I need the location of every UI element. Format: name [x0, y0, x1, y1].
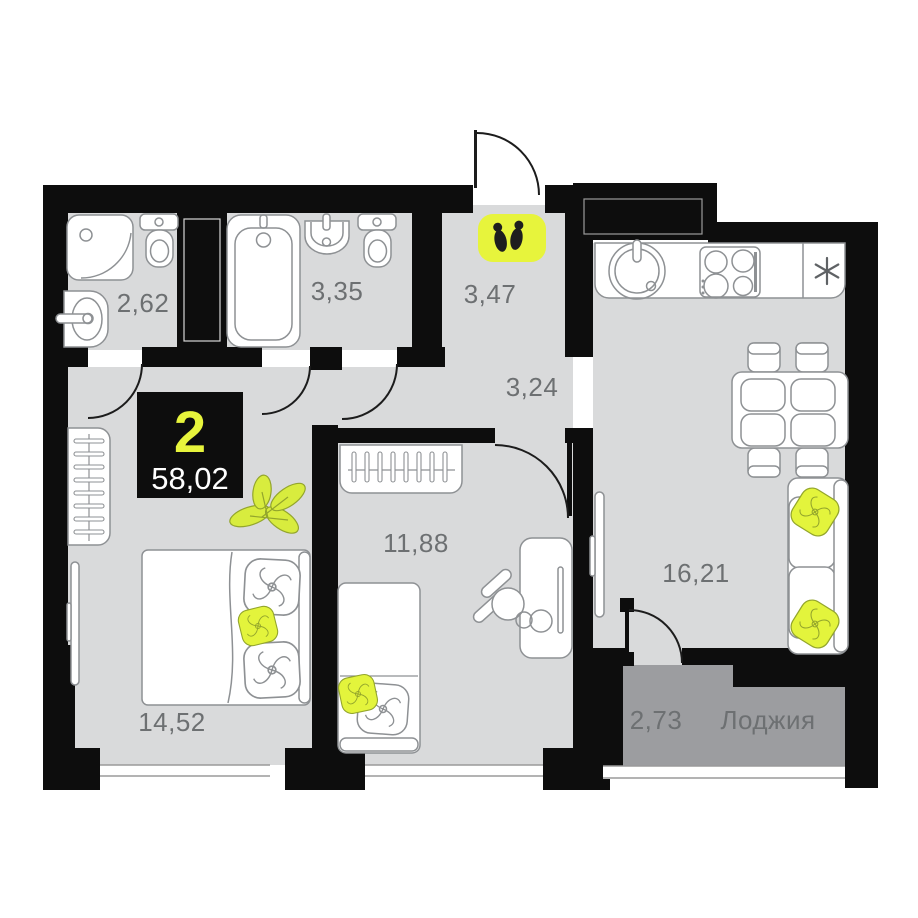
wall-pier: [68, 347, 88, 367]
radiator: [71, 562, 79, 685]
plan-badge: 2 58,02: [137, 392, 243, 498]
monitor: [558, 567, 563, 633]
radiator-valve: [67, 603, 71, 641]
wall-pier: [43, 748, 100, 790]
loggia-door-leaf: [625, 608, 629, 665]
wall-pier: [285, 748, 365, 790]
chair-back: [796, 343, 828, 354]
wall-segment: [43, 185, 473, 213]
radiator-valve: [590, 536, 595, 576]
floor-door-gap: [495, 428, 567, 443]
floor-plan: 2 58,02 2,62 3,35 3,47 3,24 11,88 16,21 …: [0, 0, 918, 918]
windows: [100, 765, 845, 779]
bed-pillow: [243, 641, 301, 699]
label-loggia-name: Лоджия: [720, 705, 815, 735]
floor-plan-drawing: 2 58,02 2,62 3,35 3,47 3,24 11,88 16,21 …: [0, 0, 918, 918]
label-room: 11,88: [383, 528, 449, 558]
label-bathroom-small: 2,62: [117, 288, 170, 318]
chair-back: [748, 466, 780, 477]
wall-segment: [43, 645, 75, 748]
wall-segment: [412, 185, 442, 352]
wall-segment: [573, 183, 717, 193]
label-kitchen-living: 16,21: [662, 558, 730, 588]
badge-total-area: 58,02: [151, 461, 229, 496]
stove-handle: [754, 252, 757, 292]
washbasin-tap: [56, 314, 92, 323]
window-room: [365, 765, 543, 777]
entrance-door-leaf: [474, 130, 477, 188]
desk: [520, 538, 572, 658]
wall-right: [845, 222, 878, 788]
entrance-door-arc: [477, 133, 539, 195]
kitchen-sink-tap: [633, 240, 641, 262]
wall-sink-tap: [323, 214, 330, 230]
wall-pier: [565, 428, 593, 443]
loggia-glazing: [603, 766, 845, 779]
bed-footboard: [340, 738, 418, 751]
label-bathroom: 3,35: [311, 276, 364, 306]
wall-pier: [310, 347, 342, 370]
wall-loggia-left: [573, 648, 623, 766]
hall-closet: [578, 193, 708, 240]
wall-bedroom-divider: [312, 425, 338, 750]
window-bedroom: [100, 765, 270, 777]
label-corridor: 3,24: [506, 372, 559, 402]
radiator: [595, 492, 604, 617]
entrance-marker: [478, 214, 546, 262]
label-hallway: 3,47: [464, 279, 517, 309]
toilet-tank: [140, 214, 178, 230]
wall-segment: [142, 347, 262, 367]
badge-rooms-count: 2: [174, 400, 206, 465]
bed-pillow: [243, 558, 301, 616]
chair-back: [748, 343, 780, 354]
toilet-tank: [358, 214, 396, 230]
wall-segment: [682, 648, 733, 665]
bed-pillow-accent: [337, 673, 380, 716]
label-loggia-area: 2,73: [630, 705, 683, 735]
label-bedroom: 14,52: [138, 707, 206, 737]
shower-basin: [67, 215, 133, 280]
floor-loggia-threshold: [627, 648, 682, 666]
wall-segment: [338, 428, 495, 443]
chair-back: [796, 466, 828, 477]
